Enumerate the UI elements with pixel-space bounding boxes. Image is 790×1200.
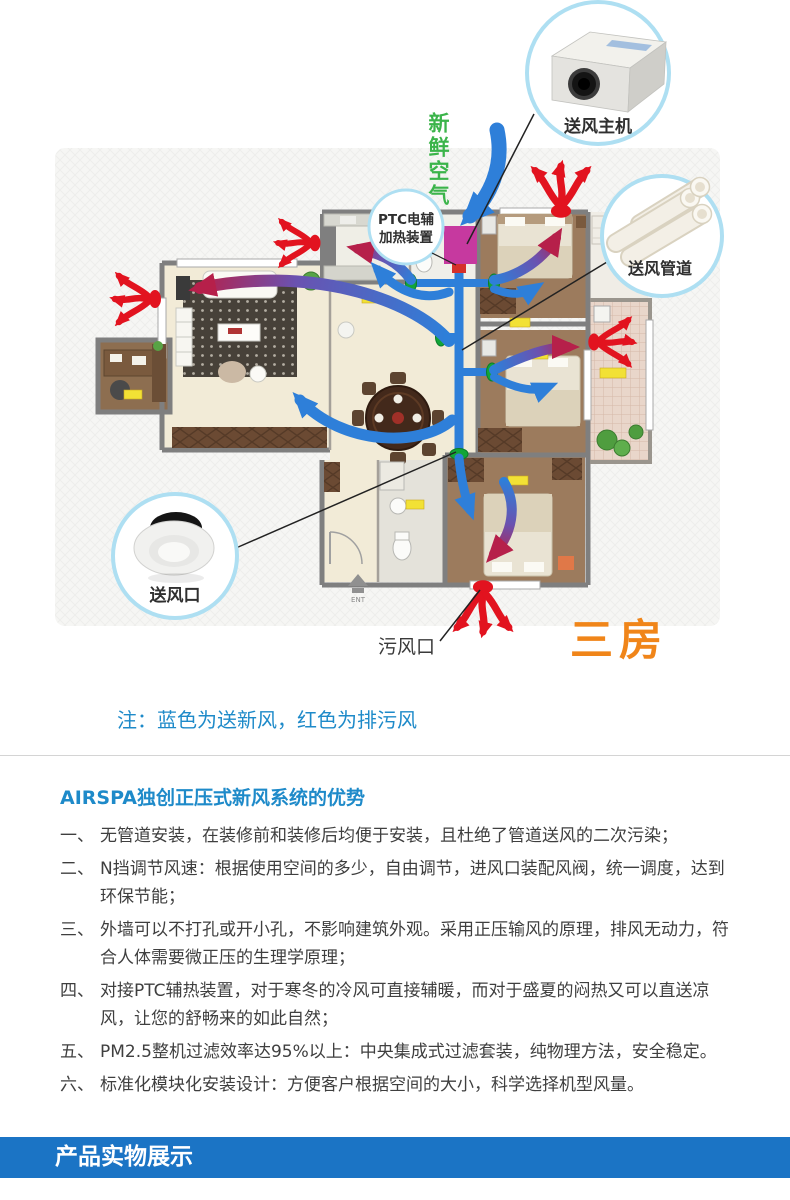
advantage-text: 外墙可以不打孔或开小孔，不影响建筑外观。采用正压输风的原理，排风无动力，符合人体…	[100, 916, 740, 972]
banner-title: 产品实物展示	[55, 1137, 790, 1178]
advantage-number: 四、	[60, 977, 100, 1033]
advantage-text: 对接PTC辅热装置，对于寒冬的冷风可直接辅暖，而对于盛夏的闷热又可以直送凉风，让…	[100, 977, 740, 1033]
advantage-text: 标准化模块化安装设计：方便客户根据空间的大小，科学选择机型风量。	[100, 1071, 740, 1099]
supply-unit-label: 送风主机	[564, 116, 632, 137]
advantage-item: 四、 对接PTC辅热装置，对于寒冬的冷风可直接辅暖，而对于盛夏的闷热又可以直送凉…	[60, 977, 740, 1033]
ptc-label-line1: PTC电辅	[378, 211, 435, 228]
fresh-air-label: 新鲜空气	[423, 112, 453, 208]
supply-duct-label: 送风管道	[627, 259, 692, 278]
supply-outlet-label: 送风口	[150, 585, 201, 606]
advantage-text: PM2.5整机过滤效率达95%以上：中央集成式过滤套装，纯物理方法，安全稳定。	[100, 1038, 740, 1066]
callout-supply-outlet: 送风口	[113, 494, 237, 618]
advantage-number: 三、	[60, 916, 100, 972]
advantage-text: 无管道安装，在装修前和装修后均便于安装，且杜绝了管道送风的二次污染；	[100, 822, 740, 850]
product-page: ENT	[0, 0, 790, 1200]
advantage-item: 三、 外墙可以不打孔或开小孔，不影响建筑外观。采用正压输风的原理，排风无动力，符…	[60, 916, 740, 972]
callout-supply-duct: 送风管道	[602, 176, 722, 296]
advantage-item: 五、 PM2.5整机过滤效率达95%以上：中央集成式过滤套装，纯物理方法，安全稳…	[60, 1038, 740, 1066]
advantages-section: AIRSPA独创正压式新风系统的优势 一、 无管道安装，在装修前和装修后均便于安…	[60, 783, 740, 1104]
advantage-text: N挡调节风速：根据使用空间的多少，自由调节，进风口装配风阀，统一调度，达到环保节…	[100, 855, 740, 911]
ptc-label-line2: 加热装置	[378, 229, 433, 246]
section-banner: 产品实物展示	[0, 1137, 790, 1178]
entrance-label: ENT	[351, 596, 366, 604]
exhaust-outlet-label: 污风口	[378, 632, 435, 659]
advantage-number: 一、	[60, 822, 100, 850]
callout-supply-unit: 送风主机	[527, 2, 669, 144]
advantage-number: 二、	[60, 855, 100, 911]
advantage-number: 五、	[60, 1038, 100, 1066]
apartment-type-label: 三房	[570, 606, 668, 668]
advantages-title: AIRSPA独创正压式新风系统的优势	[60, 783, 740, 810]
color-legend-note: 注：蓝色为送新风，红色为排污风	[117, 704, 417, 733]
advantage-item: 一、 无管道安装，在装修前和装修后均便于安装，且杜绝了管道送风的二次污染；	[60, 822, 740, 850]
advantage-item: 六、 标准化模块化安装设计：方便客户根据空间的大小，科学选择机型风量。	[60, 1071, 740, 1099]
section-divider	[0, 755, 790, 756]
advantage-item: 二、 N挡调节风速：根据使用空间的多少，自由调节，进风口装配风阀，统一调度，达到…	[60, 855, 740, 911]
advantage-number: 六、	[60, 1071, 100, 1099]
